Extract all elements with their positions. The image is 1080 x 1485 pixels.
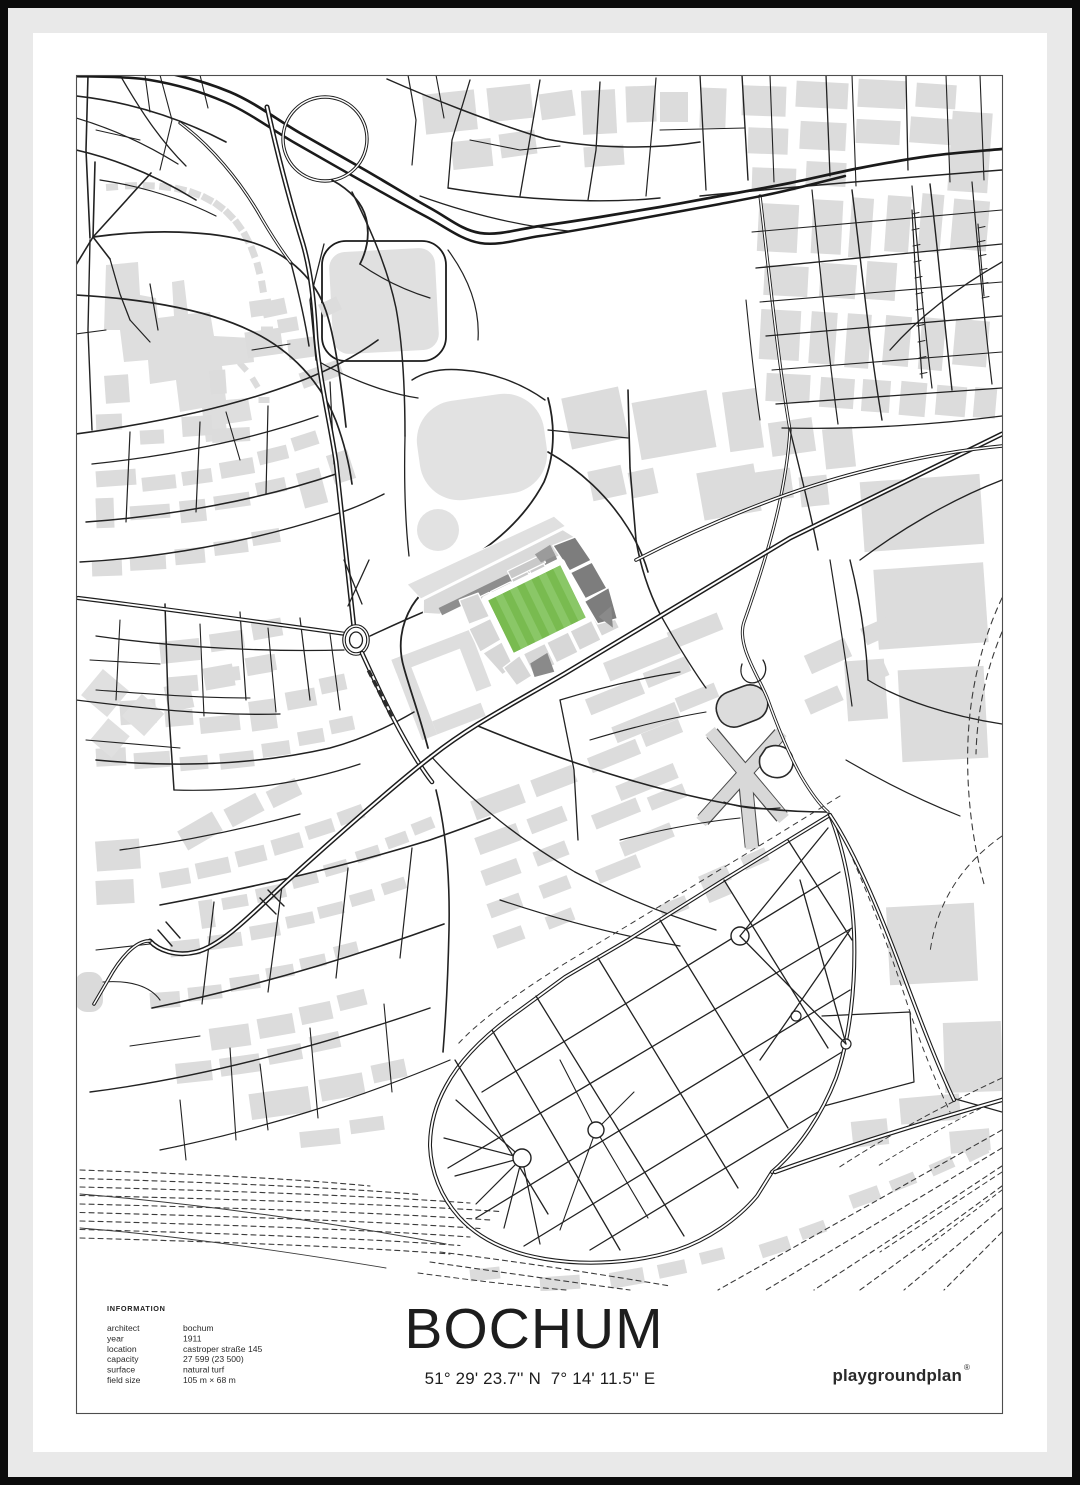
svg-text:BOCHUM: BOCHUM bbox=[404, 1297, 663, 1361]
svg-text:capacity: capacity bbox=[107, 1354, 139, 1364]
svg-text:®: ® bbox=[964, 1363, 970, 1372]
svg-text:27 599 (23 500): 27 599 (23 500) bbox=[183, 1354, 244, 1364]
svg-text:castroper straße 145: castroper straße 145 bbox=[183, 1344, 263, 1354]
svg-text:INFORMATION: INFORMATION bbox=[107, 1304, 166, 1313]
svg-text:playgroundplan: playgroundplan bbox=[833, 1366, 962, 1385]
svg-text:year: year bbox=[107, 1333, 124, 1343]
svg-text:105 m × 68 m: 105 m × 68 m bbox=[183, 1375, 236, 1385]
svg-text:location: location bbox=[107, 1344, 137, 1354]
svg-text:bochum: bochum bbox=[183, 1323, 214, 1333]
svg-text:field size: field size bbox=[107, 1375, 141, 1385]
svg-text:51° 29' 23.7'' N 7° 14' 11.5': 51° 29' 23.7'' N 7° 14' 11.5'' E bbox=[425, 1369, 656, 1388]
svg-text:architect: architect bbox=[107, 1323, 140, 1333]
svg-text:natural turf: natural turf bbox=[183, 1365, 225, 1375]
svg-text:1911: 1911 bbox=[183, 1333, 202, 1343]
svg-text:surface: surface bbox=[107, 1365, 135, 1375]
